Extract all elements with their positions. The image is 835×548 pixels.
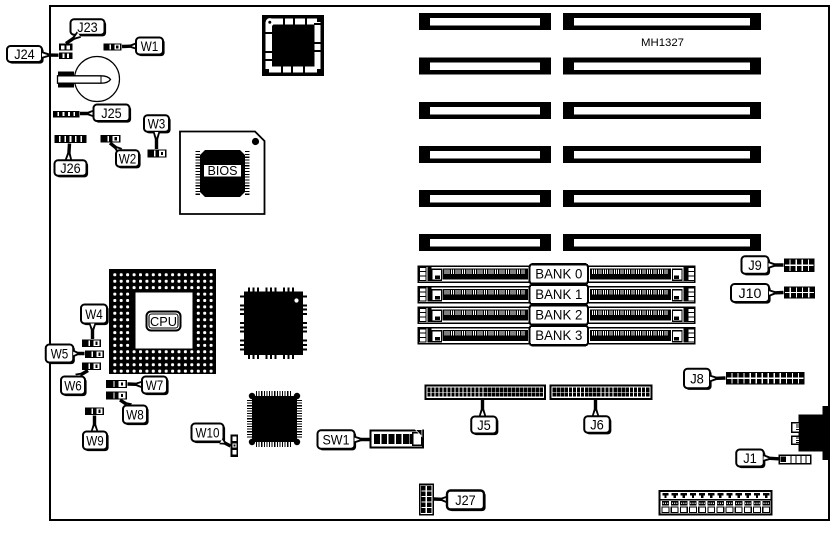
svg-text:CPU: CPU	[150, 314, 177, 329]
svg-text:W8: W8	[126, 407, 144, 423]
svg-text:W1: W1	[141, 38, 159, 54]
svg-text:J9: J9	[748, 257, 762, 273]
svg-text:J1: J1	[743, 450, 757, 466]
svg-text:J6: J6	[590, 417, 604, 433]
svg-text:J5: J5	[477, 417, 491, 433]
svg-text:W7: W7	[146, 377, 164, 393]
svg-text:W10: W10	[196, 425, 220, 441]
svg-text:BANK 0: BANK 0	[535, 266, 582, 281]
svg-text:W9: W9	[86, 433, 104, 449]
svg-text:BANK 1: BANK 1	[535, 287, 582, 302]
svg-text:J8: J8	[690, 371, 704, 387]
svg-text:W4: W4	[85, 306, 103, 322]
svg-text:SW1: SW1	[323, 432, 350, 448]
svg-text:W3: W3	[148, 116, 166, 132]
svg-text:W5: W5	[51, 346, 69, 362]
svg-text:BANK 2: BANK 2	[535, 307, 582, 322]
svg-text:J26: J26	[60, 160, 81, 176]
svg-text:BIOS: BIOS	[208, 163, 238, 178]
svg-text:W2: W2	[119, 151, 137, 167]
svg-text:J10: J10	[739, 285, 762, 301]
svg-text:J27: J27	[455, 492, 476, 508]
svg-text:J24: J24	[14, 46, 35, 62]
svg-text:BANK 3: BANK 3	[535, 328, 582, 343]
svg-text:W6: W6	[64, 378, 82, 394]
svg-text:J23: J23	[77, 19, 98, 35]
svg-text:J25: J25	[101, 105, 122, 121]
svg-text:MH1327: MH1327	[641, 37, 684, 49]
